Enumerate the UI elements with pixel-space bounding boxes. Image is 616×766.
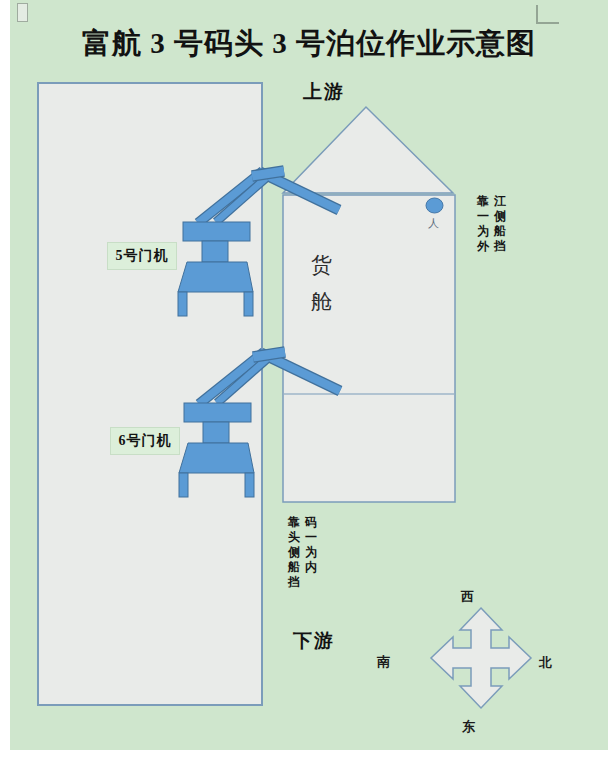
note-line: 为船 bbox=[477, 224, 511, 239]
cargo-hold-char-bottom: 舱 bbox=[311, 288, 332, 316]
compass-rose bbox=[431, 608, 531, 708]
note-line: 靠江 bbox=[477, 194, 511, 209]
corner-crop-mark bbox=[537, 5, 559, 23]
crane-5-label: 5号门机 bbox=[116, 247, 169, 265]
note-line: 船内 bbox=[288, 560, 322, 575]
document-page: 富航 3 号码头 3 号泊位作业示意图 上游 下游 5号门机 6号门机 货 舱 … bbox=[0, 0, 616, 766]
crane-5-label-box: 5号门机 bbox=[107, 242, 177, 270]
note-line: 一侧 bbox=[477, 209, 511, 224]
note-line: 头一 bbox=[288, 530, 322, 545]
ship-bow bbox=[283, 107, 453, 193]
ship-hull bbox=[283, 195, 455, 502]
compass-west-label: 西 bbox=[461, 588, 474, 606]
compass-north-label: 北 bbox=[539, 654, 552, 672]
downstream-label: 下游 bbox=[293, 628, 335, 654]
diagram-title: 富航 3 号码头 3 号泊位作业示意图 bbox=[10, 24, 608, 64]
crane-6-label: 6号门机 bbox=[119, 432, 172, 450]
river-side-note: 靠江 一侧 为船 外挡 bbox=[477, 194, 511, 254]
person-marker bbox=[426, 198, 443, 213]
cargo-hold-char-top: 货 bbox=[311, 251, 332, 279]
dock-side-note: 靠码 头一 侧为 船内 挡 bbox=[288, 515, 322, 590]
upstream-label: 上游 bbox=[303, 79, 345, 105]
compass-south-label: 南 bbox=[377, 653, 390, 671]
compass-east-label: 东 bbox=[462, 718, 475, 736]
note-line: 外挡 bbox=[477, 239, 511, 254]
note-line: 侧为 bbox=[288, 545, 322, 560]
crane-6-label-box: 6号门机 bbox=[110, 427, 180, 455]
note-line: 挡 bbox=[288, 575, 322, 590]
note-line: 靠码 bbox=[288, 515, 322, 530]
person-label: 人 bbox=[428, 216, 439, 231]
